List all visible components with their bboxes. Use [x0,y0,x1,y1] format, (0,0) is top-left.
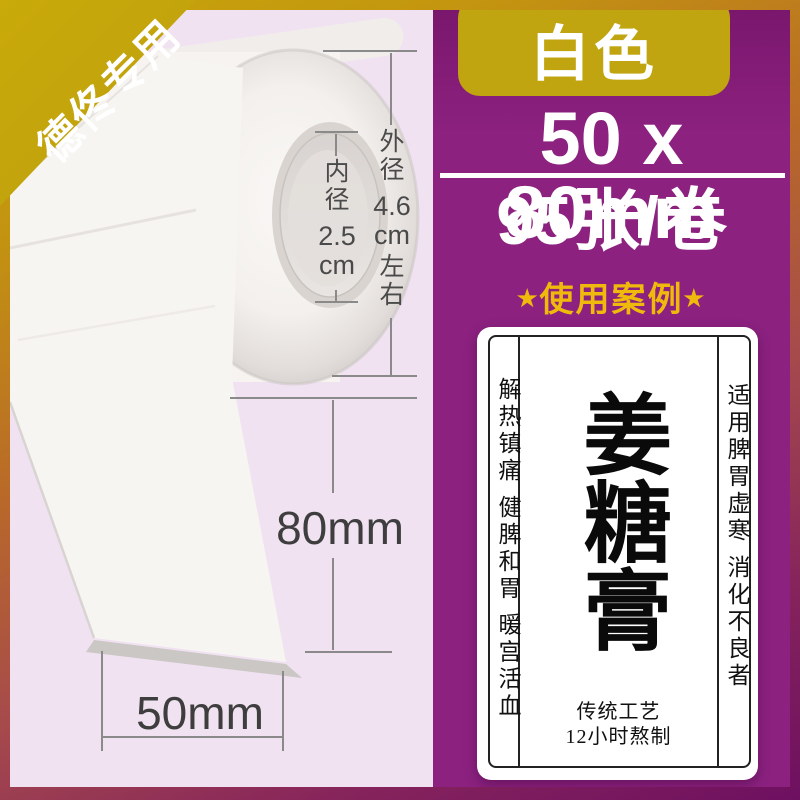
example-label-left-text: 解热镇痛 健脾和胃 暖宫活血 [490,337,524,721]
example-label-right-column: 适用脾胃虚寒 消化不良者 [717,337,749,766]
example-label-right-text: 适用脾胃虚寒 消化不良者 [719,337,753,690]
star-icon: ★ [517,285,540,311]
example-label-title: 姜糖膏 [577,389,661,653]
example-label-center-column: 姜糖膏 传统工艺 12小时熬制 [520,337,717,766]
color-badge-label: 白色 [530,10,658,93]
outer-diameter-value: 4.6 [373,193,411,220]
height-dimension: 80mm [260,505,420,551]
use-case-title: 使用案例 [540,281,684,319]
example-label-card: 解热镇痛 健脾和胃 暖宫活血 姜糖膏 传统工艺 12小时熬制 适用脾胃虚寒 消化… [477,327,758,780]
example-label-footer-line1: 传统工艺 [566,700,672,725]
sheet-count-text: 95张/卷 [433,186,790,257]
example-label-left-column: 解热镇痛 健脾和胃 暖宫活血 [490,337,520,766]
use-case-header: ★使用案例★ [433,272,790,321]
gradient-border-frame: 外径 4.6 cm 左右 内径 2.5 cm 80mm 50mm 白色 50 x… [0,0,800,800]
inner-diameter-value: 2.5 [318,223,356,250]
info-panel: 白色 50 x 80mm 95张/卷 ★使用案例★ 解热镇痛 健脾和胃 暖宫活血… [433,10,790,787]
star-icon: ★ [684,285,707,311]
color-badge: 白色 [458,10,730,96]
example-label-border: 解热镇痛 健脾和胃 暖宫活血 姜糖膏 传统工艺 12小时熬制 适用脾胃虚寒 消化… [488,335,751,768]
outer-diameter-approx: 左右 [379,253,406,309]
size-underline [440,173,785,178]
outer-diameter-label: 外径 [379,128,406,184]
example-label-footer: 传统工艺 12小时熬制 [566,700,672,750]
inner-diameter-unit: cm [319,252,355,279]
outer-diameter-callout: 外径 4.6 cm 左右 [376,128,408,309]
width-dimension: 50mm [120,690,280,736]
example-label-footer-line2: 12小时熬制 [566,725,672,750]
inner-diameter-label: 内径 [324,158,351,214]
inner-diameter-callout: 内径 2.5 cm [321,158,353,279]
outer-diameter-unit: cm [374,222,410,249]
